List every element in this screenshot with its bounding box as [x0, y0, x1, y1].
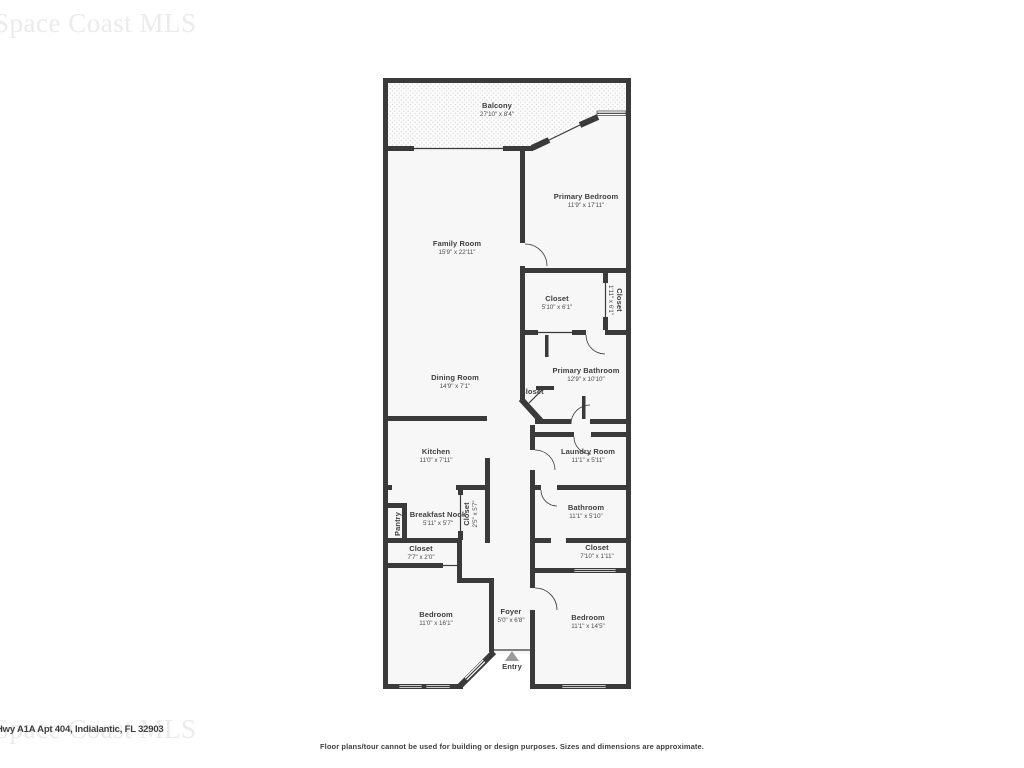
room-name: Laundry Room: [561, 447, 615, 457]
room-name: Dining Room: [431, 373, 479, 383]
room-fill-area: [386, 80, 629, 691]
room-label-foyer: Foyer 5'0" x 6'8": [497, 607, 524, 625]
room-dims: 5'11" x 5'7": [406, 520, 470, 528]
room-label-primary-bathroom: Primary Bathroom 12'9" x 10'10": [552, 366, 619, 384]
disclaimer-text: Floor plans/tour cannot be used for buil…: [0, 742, 1024, 751]
room-name: Closet: [462, 500, 472, 527]
room-dims: 2'5" x 5'7": [472, 500, 480, 527]
room-dims: 11'9" x 17'11": [554, 202, 618, 210]
room-label-primary-bedroom: Primary Bedroom 11'9" x 17'11": [554, 192, 618, 210]
room-dims: 27'10" x 8'4": [480, 111, 514, 119]
room-label-closet-primary: Closet 5'10" x 6'1": [542, 294, 573, 312]
room-name: Pantry: [393, 512, 403, 536]
room-name: Bedroom: [419, 610, 453, 620]
room-name: Family Room: [433, 239, 481, 249]
room-label-bathroom: Bathroom 11'1" x 5'10": [568, 503, 604, 521]
room-label-bedroom-left: Bedroom 11'0" x 16'1": [419, 610, 453, 628]
room-name: Breakfast Nook: [406, 510, 470, 520]
room-dims: 11'1" x 5'10": [568, 513, 604, 521]
room-dims: 11'1" x 14'5": [571, 623, 605, 631]
room-dims: 11'0" x 7'11": [419, 457, 452, 465]
room-name: Primary Bathroom: [552, 366, 619, 376]
room-label-closet-breakfast: Closet 2'5" x 5'7": [462, 500, 480, 527]
room-label-kitchen: Kitchen 11'0" x 7'11": [419, 447, 452, 465]
room-dims: 14'9" x 7'1": [431, 383, 479, 391]
room-name: Balcony: [480, 101, 514, 111]
floor-plan-page: Space Coast MLS: [0, 0, 1024, 768]
room-dims: 15'9" x 22'11": [433, 249, 481, 257]
room-dims: 7'10" x 1'11": [580, 553, 613, 561]
room-label-pantry: Pantry: [393, 512, 403, 536]
room-dims: 11'0" x 16'1": [419, 620, 453, 628]
room-label-family-room: Family Room 15'9" x 22'11": [433, 239, 481, 257]
room-label-bedroom-right: Bedroom 11'1" x 14'5": [571, 613, 605, 631]
room-label-dining-room: Dining Room 14'9" x 7'1": [431, 373, 479, 391]
address-text: Hwy A1A Apt 404, Indialantic, FL 32903: [0, 724, 164, 735]
room-dims: 1'11" x 6'1": [606, 285, 614, 315]
room-name: Closet: [580, 543, 613, 553]
room-name: Closet: [542, 294, 573, 304]
entry-label-text: Entry: [502, 662, 522, 672]
room-dims: 5'10" x 6'1": [542, 304, 573, 312]
room-label-closet-bedroom-left: Closet 7'7" x 2'0": [407, 544, 434, 562]
room-name: Bathroom: [568, 503, 604, 513]
room-name: Kitchen: [419, 447, 452, 457]
room-dims: 12'9" x 10'10": [552, 376, 619, 384]
room-dims: 7'7" x 2'0": [407, 554, 434, 562]
room-label-closet-bedroom-right: Closet 7'10" x 1'11": [580, 543, 613, 561]
room-name: Closet: [614, 285, 624, 315]
room-label-breakfast-nook: Breakfast Nook 5'11" x 5'7": [406, 510, 470, 528]
room-name: Closet: [520, 387, 544, 397]
room-label-balcony: Balcony 27'10" x 8'4": [480, 101, 514, 119]
room-label-closet-primary-2: Closet 1'11" x 6'1": [606, 285, 624, 315]
room-label-laundry-room: Laundry Room 11'1" x 5'11": [561, 447, 615, 465]
room-label-closet-hall: Closet: [520, 387, 544, 397]
room-name: Primary Bedroom: [554, 192, 618, 202]
room-name: Foyer: [497, 607, 524, 617]
entry-label: Entry: [502, 662, 522, 672]
room-name: Bedroom: [571, 613, 605, 623]
room-dims: 11'1" x 5'11": [561, 457, 615, 465]
room-name: Closet: [407, 544, 434, 554]
room-dims: 5'0" x 6'8": [497, 617, 524, 625]
